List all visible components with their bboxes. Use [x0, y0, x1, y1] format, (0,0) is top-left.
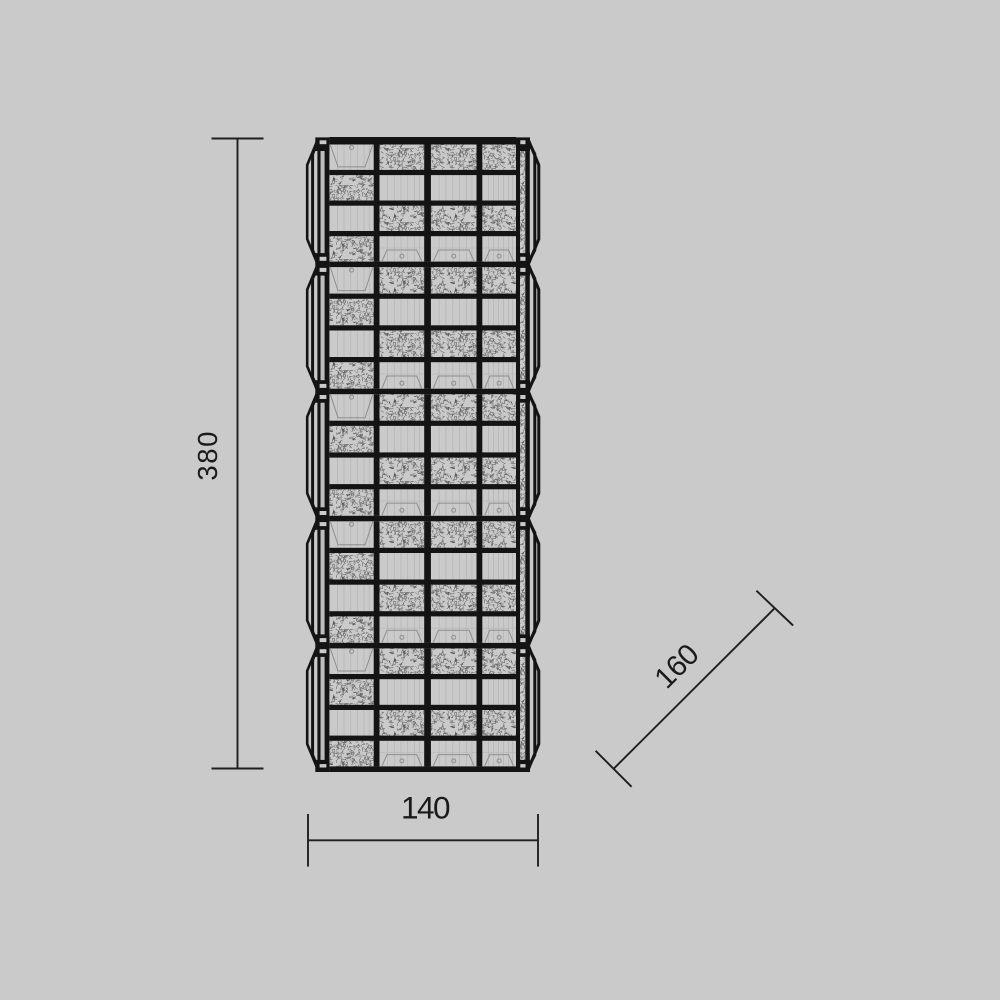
- svg-text:140: 140: [401, 790, 450, 826]
- svg-text:380: 380: [192, 430, 223, 481]
